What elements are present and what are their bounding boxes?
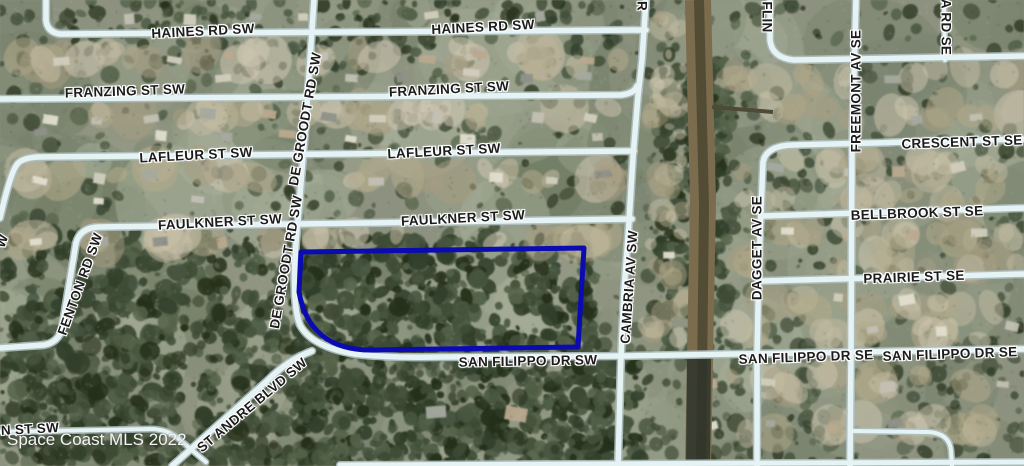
street-label: BELLBROOK ST SE (850, 203, 983, 223)
street-label: FAULKNER ST SW (158, 211, 283, 232)
street-label: FENTON RD SW (55, 231, 106, 337)
street-label: SAN FILIPPO DR SE (882, 344, 1017, 364)
street-label: FRANZING ST SW (388, 78, 509, 99)
street-label: FRANZING ST SW (65, 81, 186, 100)
street-label: CRESCENT ST SE (901, 132, 1023, 151)
street-label: DAGGET AV SE (750, 196, 765, 300)
street-label: PRAIRIE ST SE (863, 268, 965, 287)
street-label: DE GROODT RD SW (286, 51, 324, 187)
street-label: FREEMONT AV SE (849, 30, 864, 153)
street-label: A RD SE (939, 0, 954, 55)
street-label: HAINES RD SW (431, 17, 535, 37)
street-label: ST ANDRE BLVD SW (194, 355, 310, 455)
street-label: R (635, 1, 650, 11)
street-label: SAN FILIPPO DR SE (738, 347, 873, 367)
street-labels-layer: HAINES RD SWHAINES RD SWFRANZING ST SWFR… (0, 0, 1024, 466)
street-label: CAMBRIA AV SW (618, 230, 641, 344)
street-label: LAFLEUR ST SW (139, 145, 253, 166)
street-label: FAULKNER ST SW (401, 207, 526, 228)
street-label: W (0, 232, 11, 249)
mls-watermark: Space Coast MLS 2022 (7, 430, 187, 450)
street-label: LAFLEUR ST SW (387, 141, 501, 162)
street-label: FLIN (760, 1, 775, 32)
aerial-map: HAINES RD SWHAINES RD SWFRANZING ST SWFR… (0, 0, 1024, 466)
street-label: SAN FILIPPO DR SW (459, 352, 598, 369)
street-label: HAINES RD SW (151, 21, 255, 41)
